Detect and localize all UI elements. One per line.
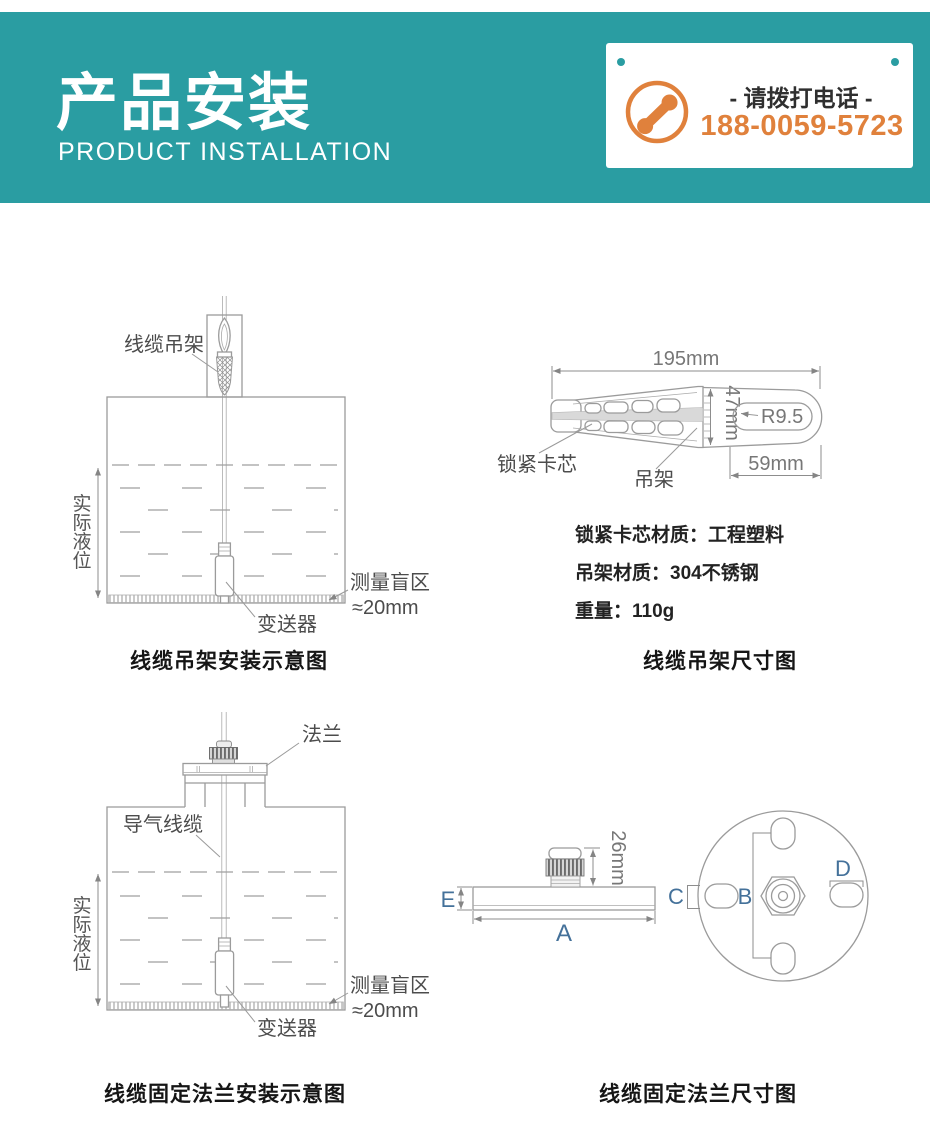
hanger-dims-diagram: 195mm bbox=[497, 348, 822, 491]
transmitter-figure bbox=[215, 938, 233, 1007]
blind-zone-label: 测量盲区 bbox=[350, 974, 430, 997]
vent-cable-leader bbox=[196, 835, 220, 857]
actual-level-label: 实 际 液 位 bbox=[72, 895, 91, 974]
cable-hanger-label: 线缆吊架 bbox=[124, 333, 204, 356]
flange-top-view bbox=[688, 811, 869, 981]
level-char-2: 际 bbox=[72, 512, 91, 534]
serration-ticks bbox=[704, 396, 710, 438]
level-char-4: 位 bbox=[72, 952, 91, 974]
spec-hanger-material: 吊架材质：304不锈钢 bbox=[575, 558, 915, 585]
flange-leader bbox=[266, 743, 299, 766]
level-char-3: 液 bbox=[72, 933, 91, 955]
level-char-1: 实 bbox=[72, 895, 91, 917]
gland-height-dimension: 26mm bbox=[607, 830, 629, 886]
radius-dimension: R9.5 bbox=[761, 406, 803, 428]
caption-hanger-install: 线缆吊架安装示意图 bbox=[104, 645, 354, 675]
caption-hanger-dims: 线缆吊架尺寸图 bbox=[616, 645, 824, 675]
slot-width-dimension: 59mm bbox=[748, 453, 804, 475]
height-dimension: 47mm bbox=[721, 385, 743, 441]
hanger-label: 吊架 bbox=[634, 468, 674, 491]
width-letter: A bbox=[556, 920, 572, 947]
slot-letter: C bbox=[668, 884, 684, 909]
blind-zone-value: ≈20mm bbox=[352, 1000, 419, 1022]
level-char-1: 实 bbox=[72, 493, 91, 515]
cable-gland-figure bbox=[210, 741, 238, 764]
length-dimension: 195mm bbox=[653, 348, 720, 370]
thickness-letter: E bbox=[441, 887, 456, 912]
level-char-4: 位 bbox=[72, 550, 91, 572]
actual-level-label: 实 际 液 位 bbox=[72, 493, 91, 572]
spec-lock-core-material: 锁紧卡芯材质：工程塑料 bbox=[575, 520, 915, 547]
transmitter-label: 变送器 bbox=[257, 613, 317, 636]
caption-flange-install: 线缆固定法兰安装示意图 bbox=[92, 1078, 358, 1108]
flange-label: 法兰 bbox=[302, 723, 342, 746]
spec-weight: 重量：110g bbox=[575, 596, 915, 623]
flange-install-diagram: 实 际 液 位 导气线缆 法兰 测量盲区 ≈20mm 变送器 bbox=[72, 712, 430, 1040]
vent-cable-label: 导气线缆 bbox=[123, 813, 203, 836]
level-char-3: 液 bbox=[72, 531, 91, 553]
blind-zone-value: ≈20mm bbox=[352, 597, 419, 619]
level-char-2: 际 bbox=[72, 914, 91, 936]
caption-flange-dims: 线缆固定法兰尺寸图 bbox=[596, 1078, 800, 1108]
hole-letter: D bbox=[835, 856, 851, 881]
cable-hanger-figure bbox=[217, 318, 233, 395]
transmitter-label: 变送器 bbox=[257, 1017, 317, 1040]
flange-figure bbox=[183, 764, 267, 808]
transmitter-figure bbox=[215, 543, 233, 603]
cable-hanger-leader bbox=[192, 354, 218, 372]
product-installation-page: 产品安装 PRODUCT INSTALLATION - 请拨打电话 - 188-… bbox=[0, 0, 930, 1142]
blind-zone-label: 测量盲区 bbox=[350, 571, 430, 594]
lock-core-label: 锁紧卡芯 bbox=[497, 453, 577, 476]
bolt-span-letter: B bbox=[738, 884, 753, 909]
hanger-install-diagram: 实 际 液 位 变送器 测量盲区 ≈20mm 线缆吊架 bbox=[72, 296, 430, 636]
flange-dims-diagram: 26mm E A B bbox=[441, 811, 868, 981]
